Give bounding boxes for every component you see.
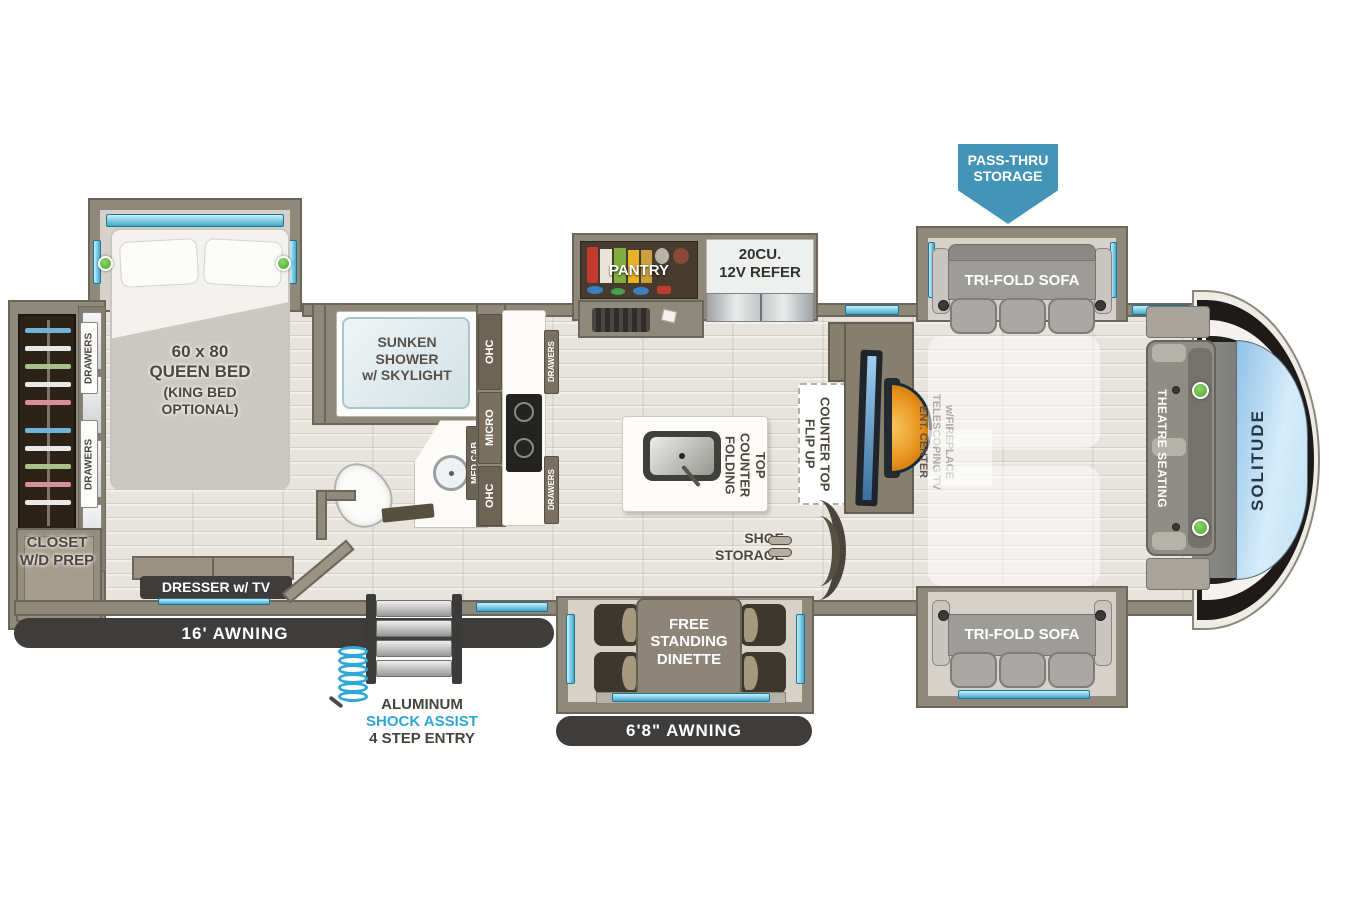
bed-pillow-left <box>119 238 199 288</box>
entry-steps-label: 4 STEP ENTRY <box>348 730 496 748</box>
awning-entry-bar: 6'8" AWNING <box>556 716 812 746</box>
queen-bed-option-label: (KING BED OPTIONAL) <box>110 384 290 417</box>
vanity-faucet <box>449 471 454 476</box>
dinette-label: FREE STANDING DINETTE <box>636 616 742 668</box>
chair-cushion <box>744 656 758 690</box>
theatre-seating-label: THEATRE SEATING <box>1154 364 1174 534</box>
tri-fold-sofa-top-label: TRI-FOLD SOFA <box>948 272 1096 289</box>
rv-floorplan: 60 x 80 QUEEN BED (KING BED OPTIONAL) DR… <box>0 0 1349 900</box>
sofa-cushion <box>950 298 997 334</box>
refer-label: 20CU. 12V REFER <box>706 246 814 281</box>
tri-fold-sofa-bottom-label: TRI-FOLD SOFA <box>948 626 1096 643</box>
micro-label: MICRO <box>478 392 502 464</box>
refer-door-seam <box>760 294 762 321</box>
refrigerator <box>706 293 814 322</box>
sofa-cushion <box>950 652 997 688</box>
island-sink <box>643 431 721 481</box>
theatre-cupholder <box>1192 382 1209 399</box>
queen-bed-label: 60 x 80 QUEEN BED <box>110 342 290 382</box>
ohc-bottom-label: OHC <box>478 466 502 526</box>
theatre-armrest <box>1152 344 1186 362</box>
closet-drawers-label-bottom: DRAWERS <box>80 420 98 508</box>
theatre-end-table <box>1146 306 1210 338</box>
rug <box>928 430 992 486</box>
dinette-chair <box>594 652 640 694</box>
awning-rear-label: 16' AWNING <box>150 624 320 644</box>
bedroom-light-right <box>276 256 291 271</box>
sofa-cushion <box>1048 652 1095 688</box>
step-tread <box>376 600 452 617</box>
hanger <box>25 482 71 487</box>
dresser-label-bar: DRESSER w/ TV <box>140 576 292 599</box>
window <box>958 690 1090 699</box>
folding-counter-label: FOLDING COUNTER TOP <box>722 422 764 508</box>
hanger <box>25 500 71 505</box>
closet-wd-label: CLOSET W/D PREP <box>2 534 112 569</box>
pantry-item <box>657 286 671 294</box>
bedroom-light-left <box>98 256 113 271</box>
chair-cushion <box>744 608 758 642</box>
sink-drain <box>679 453 685 459</box>
dresser-seam <box>212 558 214 578</box>
hanger <box>25 364 71 369</box>
hanger <box>25 400 71 405</box>
flip-up-counter-label: FLIP UP COUNTER TOP <box>802 390 842 498</box>
ohc-top-label: OHC <box>478 314 502 390</box>
dinette-chair <box>740 604 786 646</box>
hanger <box>25 464 71 469</box>
chair-cushion <box>622 656 636 690</box>
burner <box>514 438 534 458</box>
step-tread <box>376 660 452 677</box>
step-rail <box>452 594 462 684</box>
shoes <box>768 536 792 545</box>
dinette-chair <box>740 652 786 694</box>
pantry-label: PANTRY <box>582 262 696 279</box>
window <box>612 693 770 702</box>
kitchen-drawers-label-top: DRAWERS <box>544 330 559 394</box>
pantry-base-cabinet <box>578 300 704 338</box>
hanger <box>25 446 71 451</box>
dresser-tv-screen <box>158 598 270 605</box>
cupholder <box>938 300 949 311</box>
theatre-seat-backs <box>1188 348 1212 548</box>
cooktop <box>506 394 542 472</box>
theatre-end-table <box>1146 558 1210 590</box>
cupholder <box>1095 300 1106 311</box>
entry-material-label: ALUMINUM <box>348 696 496 714</box>
brand-mark: SOLITUDE <box>1248 375 1288 545</box>
theatre-armrest <box>1152 532 1186 550</box>
toilet-wall <box>316 490 327 540</box>
burner <box>514 402 534 422</box>
shoes <box>768 548 792 557</box>
bed-pillow-right <box>203 238 283 288</box>
cupholder <box>1095 610 1106 621</box>
sofa-cushion <box>1048 298 1095 334</box>
shoe-storage-label: SHOE STORAGE <box>694 530 784 563</box>
hanger <box>25 328 71 333</box>
awning-entry-label: 6'8" AWNING <box>626 721 742 741</box>
step-tread <box>376 620 452 637</box>
closet-hanger-bay <box>18 314 76 532</box>
cupholder <box>938 610 949 621</box>
hanger <box>25 346 71 351</box>
countertop-appliance <box>592 308 650 332</box>
hanger <box>25 382 71 387</box>
dresser-tv-label: DRESSER w/ TV <box>162 579 270 595</box>
chair-cushion <box>622 608 636 642</box>
pantry-item <box>611 288 625 295</box>
bedroom-headboard-window <box>106 214 284 227</box>
entry-window <box>476 602 548 612</box>
theatre-cupholder <box>1192 519 1209 536</box>
shoe-bench-inner <box>798 516 840 586</box>
window <box>566 614 575 684</box>
closet-drawers-label-top: DRAWERS <box>80 322 98 394</box>
window <box>845 305 899 315</box>
entry-feature-label: SHOCK ASSIST <box>348 713 496 731</box>
dinette-chair <box>594 604 640 646</box>
window <box>796 614 805 684</box>
pantry-item <box>633 287 649 295</box>
pass-thru-label: PASS-THRU STORAGE <box>958 152 1058 184</box>
tv-screen <box>862 356 876 500</box>
sofa-cushion <box>999 652 1046 688</box>
shower-label: SUNKEN SHOWER w/ SKYLIGHT <box>336 334 478 384</box>
pantry-item <box>587 286 603 294</box>
hanger <box>25 428 71 433</box>
sofa-cushion <box>999 298 1046 334</box>
step-tread <box>376 640 452 657</box>
countertop-paper <box>661 309 677 324</box>
kitchen-drawers-label-bottom: DRAWERS <box>544 456 559 524</box>
bottom-wall <box>812 600 918 616</box>
